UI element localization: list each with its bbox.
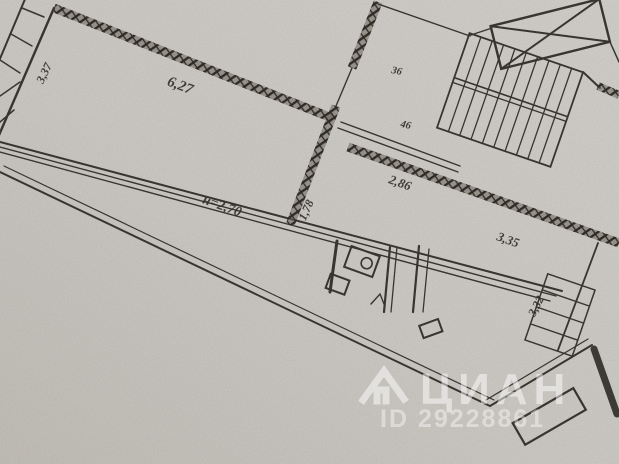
cian-listing-id-watermark: ID 29228861 (380, 405, 545, 433)
floor-plan-canvas: 3,37 6,27 н=2,70 1,78 2,86 3,35 3,32 36 … (0, 0, 619, 464)
floor-plan-photo: 3,37 6,27 н=2,70 1,78 2,86 3,35 3,32 36 … (0, 0, 619, 464)
